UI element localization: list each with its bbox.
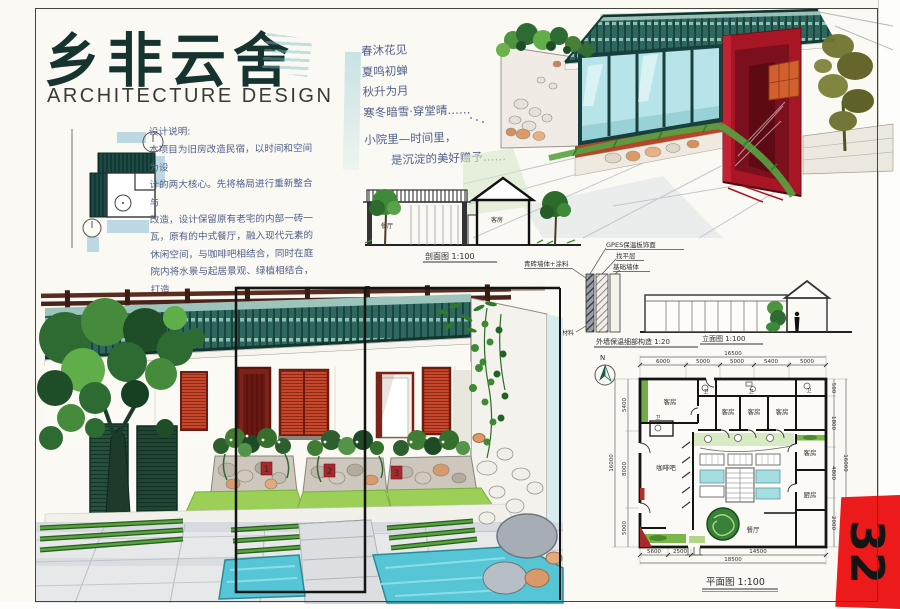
wall-detail-left-label: 青砖墙体+涂料 bbox=[524, 259, 569, 268]
elevation-drawing: 立面图 1:100 bbox=[640, 281, 852, 344]
red-window-2 bbox=[423, 368, 450, 434]
plan-caption: 平面图 1:100 bbox=[706, 577, 765, 588]
person-figure bbox=[795, 312, 800, 332]
page-number-tab: 32 bbox=[834, 495, 900, 609]
dim: 14500 bbox=[749, 549, 767, 555]
door-tag: 1 bbox=[264, 465, 270, 475]
dim: 6000 bbox=[656, 359, 670, 365]
dim: 4800 bbox=[830, 466, 836, 480]
section-room-left-label: 餐厅 bbox=[381, 222, 393, 230]
room-label: 厨房 bbox=[804, 490, 817, 499]
notes-line: 瓦，原有的中式餐厅，融入现代元素的 bbox=[150, 228, 322, 247]
layer-label: GPES保温板饰面 bbox=[606, 240, 656, 249]
door-tag: 3 bbox=[394, 469, 400, 479]
plan-tree bbox=[707, 508, 739, 540]
board-subtitle: ARCHITECTURE DESIGN bbox=[47, 85, 333, 108]
red-door-2 bbox=[377, 373, 413, 437]
room-label: 客房 bbox=[804, 448, 817, 457]
notes-line: 计的两大核心。先将格局进行重新整合与 bbox=[149, 175, 321, 212]
notes-line: 休闲空间，与咖啡吧相结合，同时在庭 bbox=[150, 245, 322, 264]
section-room-right-label: 客房 bbox=[491, 216, 503, 224]
dim: 5000 bbox=[696, 359, 710, 365]
dim: 16000 bbox=[842, 454, 848, 472]
room-label: 客房 bbox=[664, 397, 677, 406]
stone-fence bbox=[803, 124, 893, 174]
notes-line: 改造，设计保留原有老宅的内部一砖一 bbox=[150, 210, 322, 229]
layer-label: 找平层 bbox=[616, 251, 636, 260]
dim: 5400 bbox=[764, 359, 778, 365]
red-door bbox=[723, 28, 801, 202]
room-label: 咖啡吧 bbox=[656, 463, 676, 472]
floor-plan: N bbox=[588, 348, 880, 600]
dim: 16000 bbox=[609, 454, 615, 472]
dim: 2500 bbox=[673, 549, 687, 555]
site-sketch-building bbox=[90, 153, 155, 217]
dim: 2000 bbox=[830, 516, 836, 530]
room-label: 客房 bbox=[722, 407, 735, 416]
room-label: 客房 bbox=[748, 407, 761, 416]
dim: 5600 bbox=[647, 549, 661, 555]
room-label: 餐厅 bbox=[747, 525, 761, 534]
courtyard-perspective: 1 2 3 bbox=[35, 278, 563, 603]
room-label: 卫 bbox=[806, 388, 811, 394]
center-walkway bbox=[299, 520, 387, 603]
red-window-1 bbox=[278, 370, 330, 440]
door-tag: 2 bbox=[327, 467, 333, 477]
room-label: 客房 bbox=[776, 407, 789, 416]
red-window bbox=[181, 372, 207, 430]
section-caption: 剖面图 1:100 bbox=[425, 251, 475, 261]
elevation-caption: 立面图 1:100 bbox=[702, 334, 745, 343]
detail-and-elevation: 青砖墙体+涂料 GPES保温板饰面 找平层 基础墙体 饰面材料 外墙保温细部构造… bbox=[520, 226, 878, 354]
dim: 1800 bbox=[830, 416, 836, 430]
dim: 5000 bbox=[800, 359, 814, 365]
sketch-dots bbox=[470, 117, 484, 123]
dim: 16500 bbox=[724, 351, 742, 357]
dim: 18500 bbox=[724, 557, 742, 563]
dim: 500 bbox=[830, 383, 836, 394]
room-label: 卫 bbox=[748, 389, 753, 395]
presentation-board: 乡非云舍 ARCHITECTURE DESIGN bbox=[0, 0, 900, 609]
page-number: 32 bbox=[840, 520, 894, 584]
dim: 5000 bbox=[730, 359, 744, 365]
layer-label: 基础墙体 bbox=[613, 262, 640, 271]
north-arrow: N bbox=[595, 354, 615, 385]
dim: 5400 bbox=[622, 398, 628, 412]
dim: 5000 bbox=[622, 521, 628, 535]
notes-line: 本项目为旧房改造民宿，以时间和空间为设 bbox=[149, 141, 321, 178]
design-notes-heading: 设计说明: bbox=[149, 122, 321, 141]
north-label: N bbox=[600, 354, 605, 362]
room-label: 卫 bbox=[703, 389, 708, 395]
detail-caption: 外墙保温细部构造 1:20 bbox=[596, 337, 670, 346]
room-label: 卫 bbox=[655, 415, 660, 421]
dim: 8000 bbox=[622, 462, 628, 476]
